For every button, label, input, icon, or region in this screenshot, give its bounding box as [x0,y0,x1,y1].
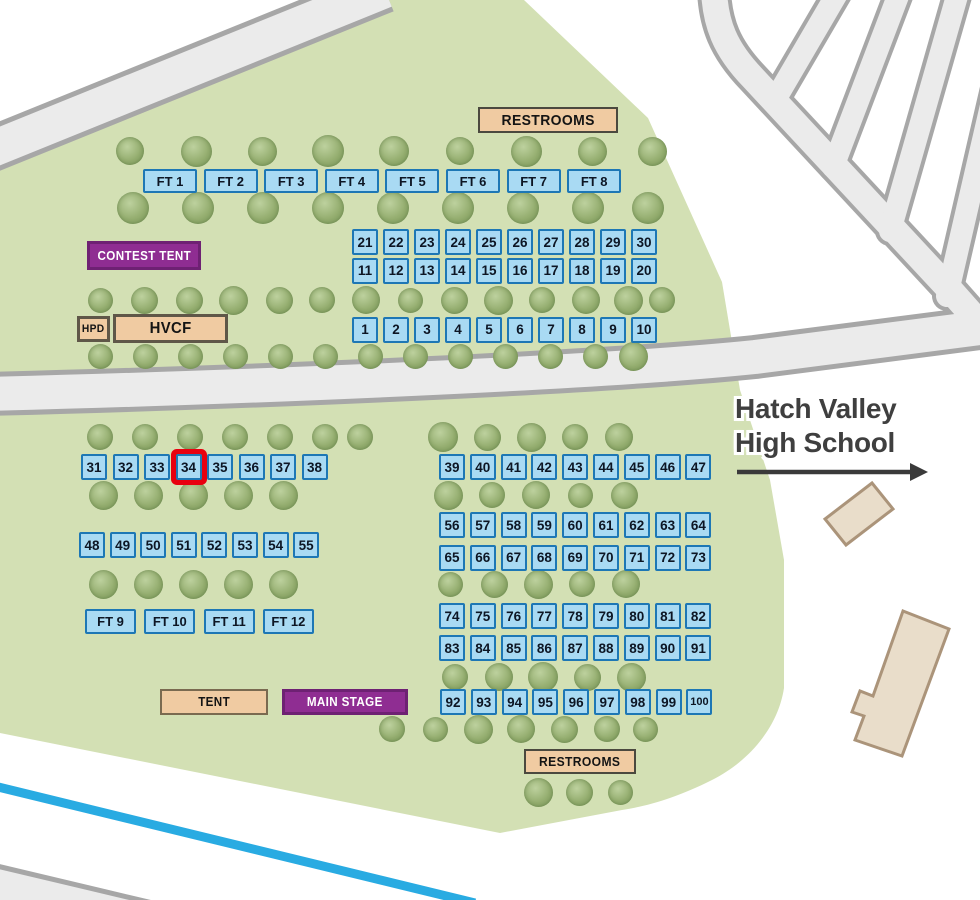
booth-56[interactable]: 56 [439,512,465,538]
booth-90[interactable]: 90 [655,635,681,661]
booth-99[interactable]: 99 [656,689,682,715]
booth-75[interactable]: 75 [470,603,496,629]
booth-62[interactable]: 62 [624,512,650,538]
booth-ft-9[interactable]: FT 9 [85,609,136,634]
booth-70[interactable]: 70 [593,545,619,571]
booth-97[interactable]: 97 [594,689,620,715]
booth-72[interactable]: 72 [655,545,681,571]
booth-88[interactable]: 88 [593,635,619,661]
booth-10[interactable]: 10 [631,317,657,343]
booth-29[interactable]: 29 [600,229,626,255]
booth-71[interactable]: 71 [624,545,650,571]
booth-22[interactable]: 22 [383,229,409,255]
booth-68[interactable]: 68 [531,545,557,571]
booth-46[interactable]: 46 [655,454,681,480]
booth-36[interactable]: 36 [239,454,265,480]
booth-19[interactable]: 19 [600,258,626,284]
booth-60[interactable]: 60 [562,512,588,538]
booth-38[interactable]: 38 [302,454,328,480]
booth-43[interactable]: 43 [562,454,588,480]
booth-33[interactable]: 33 [144,454,170,480]
booth-26[interactable]: 26 [507,229,533,255]
booth-9[interactable]: 9 [600,317,626,343]
booth-84[interactable]: 84 [470,635,496,661]
booth-12[interactable]: 12 [383,258,409,284]
booth-89[interactable]: 89 [624,635,650,661]
booth-ft-5[interactable]: FT 5 [385,169,439,193]
booth-ft-4[interactable]: FT 4 [325,169,379,193]
booth-37[interactable]: 37 [270,454,296,480]
booth-65[interactable]: 65 [439,545,465,571]
booth-69[interactable]: 69 [562,545,588,571]
booth-13[interactable]: 13 [414,258,440,284]
school-label: Hatch Valley High School [735,392,896,460]
booth-63[interactable]: 63 [655,512,681,538]
booth-92[interactable]: 92 [440,689,466,715]
booth-8[interactable]: 8 [569,317,595,343]
booth-57[interactable]: 57 [470,512,496,538]
booth-ft-1[interactable]: FT 1 [143,169,197,193]
booth-14[interactable]: 14 [445,258,471,284]
booth-61[interactable]: 61 [593,512,619,538]
booth-85[interactable]: 85 [501,635,527,661]
booth-64[interactable]: 64 [685,512,711,538]
booth-79[interactable]: 79 [593,603,619,629]
booth-11[interactable]: 11 [352,258,378,284]
booth-83[interactable]: 83 [439,635,465,661]
booth-3[interactable]: 3 [414,317,440,343]
booth-7[interactable]: 7 [538,317,564,343]
booth-67[interactable]: 67 [501,545,527,571]
booth-30[interactable]: 30 [631,229,657,255]
booth-6[interactable]: 6 [507,317,533,343]
booth-23[interactable]: 23 [414,229,440,255]
school-label-line2: High School [735,426,896,460]
booth-96[interactable]: 96 [563,689,589,715]
booth-78[interactable]: 78 [562,603,588,629]
booth-95[interactable]: 95 [532,689,558,715]
booth-80[interactable]: 80 [624,603,650,629]
booth-17[interactable]: 17 [538,258,564,284]
booth-27[interactable]: 27 [538,229,564,255]
booth-ft-6[interactable]: FT 6 [446,169,500,193]
booth-34[interactable]: 34 [176,454,202,480]
booth-93[interactable]: 93 [471,689,497,715]
booth-54[interactable]: 54 [263,532,289,558]
booth-40[interactable]: 40 [470,454,496,480]
booth-52[interactable]: 52 [201,532,227,558]
school-label-line1: Hatch Valley [735,392,896,426]
booth-20[interactable]: 20 [631,258,657,284]
booth-35[interactable]: 35 [207,454,233,480]
booth-55[interactable]: 55 [293,532,319,558]
booth-100[interactable]: 100 [686,689,712,715]
booth-31[interactable]: 31 [81,454,107,480]
booth-28[interactable]: 28 [569,229,595,255]
booth-81[interactable]: 81 [655,603,681,629]
booth-41[interactable]: 41 [501,454,527,480]
booth-77[interactable]: 77 [531,603,557,629]
booth-76[interactable]: 76 [501,603,527,629]
booth-1[interactable]: 1 [352,317,378,343]
booth-44[interactable]: 44 [593,454,619,480]
booth-53[interactable]: 53 [232,532,258,558]
booth-86[interactable]: 86 [531,635,557,661]
booth-ft-10[interactable]: FT 10 [144,609,195,634]
booth-16[interactable]: 16 [507,258,533,284]
booth-94[interactable]: 94 [502,689,528,715]
booth-21[interactable]: 21 [352,229,378,255]
booth-49[interactable]: 49 [110,532,136,558]
booth-2[interactable]: 2 [383,317,409,343]
booth-18[interactable]: 18 [569,258,595,284]
booth-59[interactable]: 59 [531,512,557,538]
booth-82[interactable]: 82 [685,603,711,629]
booth-66[interactable]: 66 [470,545,496,571]
booth-42[interactable]: 42 [531,454,557,480]
festival-map: RESTROOMS CONTEST TENT HPD HVCF TENT MAI… [0,0,980,900]
booth-45[interactable]: 45 [624,454,650,480]
booth-98[interactable]: 98 [625,689,651,715]
booth-74[interactable]: 74 [439,603,465,629]
booth-47[interactable]: 47 [685,454,711,480]
booth-87[interactable]: 87 [562,635,588,661]
booth-58[interactable]: 58 [501,512,527,538]
booth-ft-3[interactable]: FT 3 [264,169,318,193]
booth-25[interactable]: 25 [476,229,502,255]
booth-24[interactable]: 24 [445,229,471,255]
booth-50[interactable]: 50 [140,532,166,558]
booth-ft-2[interactable]: FT 2 [204,169,258,193]
booth-ft-7[interactable]: FT 7 [507,169,561,193]
booth-ft-11[interactable]: FT 11 [204,609,255,634]
booth-51[interactable]: 51 [171,532,197,558]
booth-5[interactable]: 5 [476,317,502,343]
booth-91[interactable]: 91 [685,635,711,661]
booth-39[interactable]: 39 [439,454,465,480]
booth-15[interactable]: 15 [476,258,502,284]
booth-73[interactable]: 73 [685,545,711,571]
booth-32[interactable]: 32 [113,454,139,480]
booth-4[interactable]: 4 [445,317,471,343]
booth-ft-8[interactable]: FT 8 [567,169,621,193]
booth-48[interactable]: 48 [79,532,105,558]
booth-ft-12[interactable]: FT 12 [263,609,314,634]
